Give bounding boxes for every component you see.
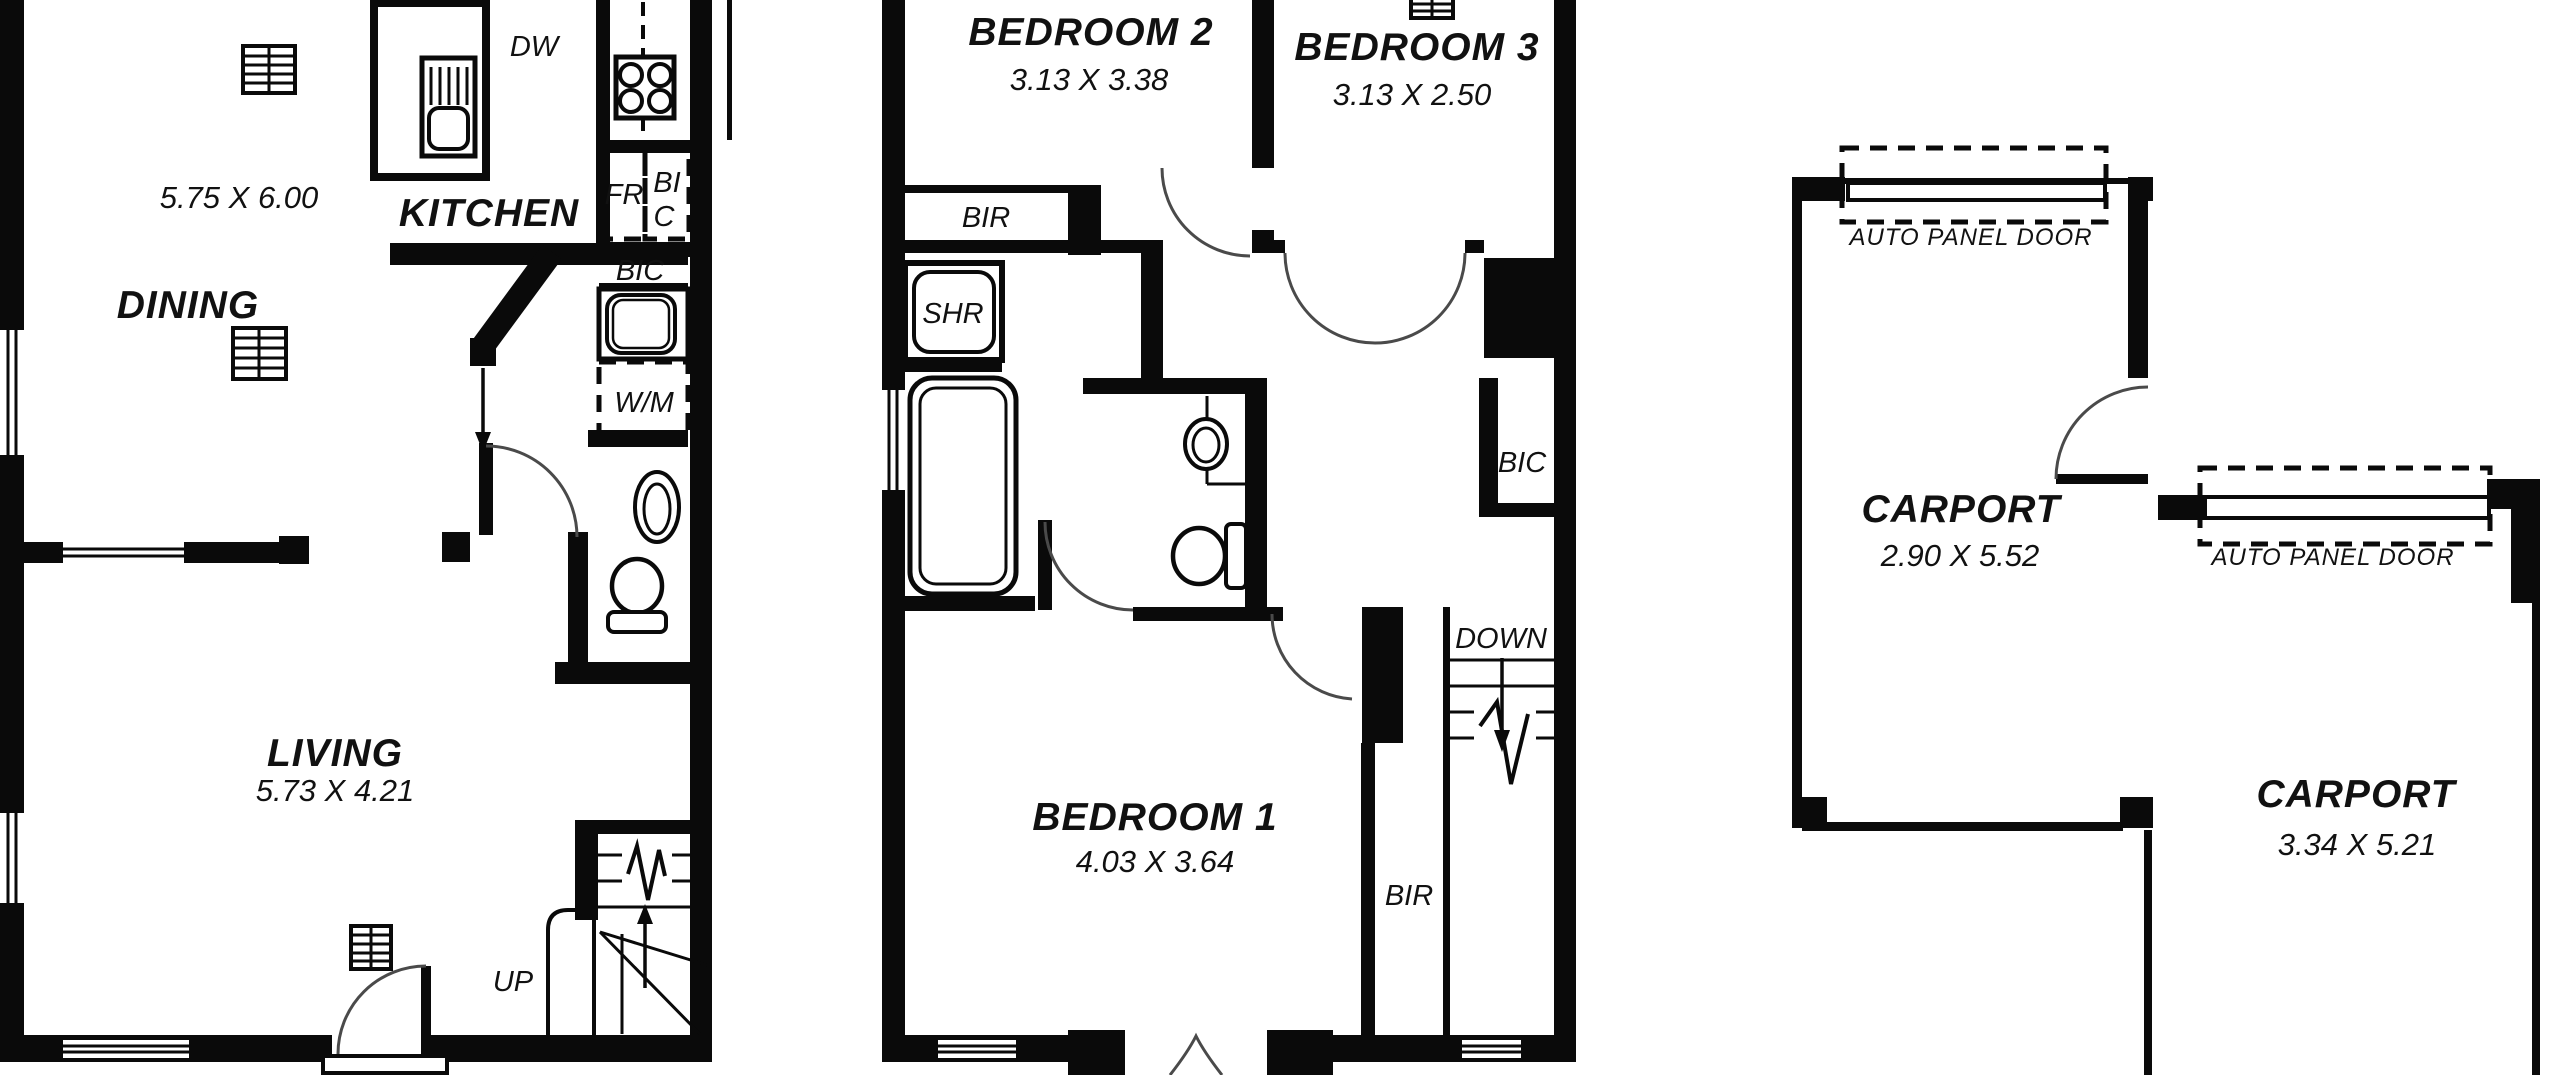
living-dims: 5.73 X 4.21	[256, 773, 415, 808]
carport1-label: CARPORT	[1861, 488, 2062, 531]
front-door	[323, 966, 447, 1073]
powder-basin-icon	[635, 472, 679, 542]
ground-floor-plan: 5.75 X 6.00 KITCHEN DINING LIVING 5.73 X…	[0, 0, 732, 1073]
robe1-label: BIR	[1385, 880, 1433, 912]
vent-icon	[233, 328, 286, 379]
stairs-down	[1450, 658, 1554, 790]
ground-floor-windows	[0, 330, 189, 1058]
bedroom1-label: BEDROOM 1	[1032, 796, 1277, 839]
carport-access-door	[2056, 387, 2148, 484]
cupboard-stack-line1: BI	[653, 167, 680, 199]
laundry-sink-icon	[599, 289, 688, 359]
window-bottom-living	[63, 1040, 189, 1058]
carport-walls	[1792, 177, 2540, 1075]
auto-panel-door-2	[2200, 468, 2490, 544]
bedroom3-dims: 3.13 X 2.50	[1333, 77, 1492, 112]
dishwasher-label: DW	[510, 31, 561, 63]
bathroom-toilet-icon	[1173, 524, 1246, 588]
fridge-label: FR	[605, 179, 644, 211]
window-bedroom1	[938, 1040, 1016, 1058]
bedroom1-door	[1272, 614, 1352, 699]
cupboard-label: BIC	[616, 255, 665, 287]
kitchen-bench	[374, 3, 486, 177]
robe2-label: BIR	[962, 202, 1010, 234]
bedroom2-dims: 3.13 X 3.38	[1010, 62, 1169, 97]
dining-label: DINING	[117, 284, 260, 327]
bedroom3-door	[1285, 253, 1465, 343]
bedroom2-door	[1162, 168, 1250, 256]
bedroom1-dims: 4.03 X 3.64	[1076, 844, 1235, 879]
bathtub-icon	[910, 378, 1016, 594]
washing-machine-label: W/M	[614, 387, 674, 419]
floor-plan-page: 5.75 X 6.00 KITCHEN DINING LIVING 5.73 X…	[0, 0, 2560, 1075]
auto-panel-door-1	[1842, 148, 2106, 222]
powder-toilet-icon	[608, 559, 666, 632]
cupboard-label: BIC	[1498, 447, 1547, 479]
carport-plan: AUTO PANEL DOOR CARPORT 2.90 X 5.52 AUTO…	[1792, 148, 2540, 1075]
window-left-living	[0, 813, 24, 903]
carport2-label: CARPORT	[2256, 773, 2457, 816]
carport1-dims: 2.90 X 5.52	[1880, 538, 2040, 573]
bedroom2-label: BEDROOM 2	[968, 11, 1213, 54]
floor-plan-svg: 5.75 X 6.00 KITCHEN DINING LIVING 5.73 X…	[0, 0, 2560, 1075]
kitchen-sink-icon	[422, 58, 475, 156]
vent-icon	[1411, 0, 1453, 18]
bathroom-door	[1038, 520, 1133, 610]
window-left-top	[0, 330, 24, 455]
carport2-dims: 3.34 X 5.21	[2278, 827, 2437, 862]
hall-door	[479, 443, 577, 537]
stove-icon	[616, 2, 674, 140]
bathroom-basin-icon	[1185, 396, 1245, 484]
dining-kitchen-dims: 5.75 X 6.00	[160, 180, 319, 215]
window-bathroom-left	[882, 390, 905, 490]
entry-path-arrow	[475, 368, 491, 452]
stairs-up-label: UP	[493, 966, 534, 998]
stairs-down-label: DOWN	[1455, 623, 1547, 655]
kitchen-label: KITCHEN	[399, 192, 579, 235]
bedroom3-label: BEDROOM 3	[1294, 26, 1539, 69]
window-interior-wall	[63, 544, 184, 561]
vent-icon	[351, 926, 391, 969]
window-stairwell	[1462, 1040, 1521, 1058]
auto-panel-door-2-label: AUTO PANEL DOOR	[2209, 544, 2454, 571]
auto-panel-door-1-label: AUTO PANEL DOOR	[1847, 224, 2092, 251]
living-label: LIVING	[267, 732, 403, 775]
shower-label: SHR	[922, 298, 983, 330]
lower-entry-door	[1170, 1036, 1222, 1075]
vent-icon	[243, 46, 295, 93]
first-floor-plan: BEDROOM 2 3.13 X 3.38 BEDROOM 3 3.13 X 2…	[882, 0, 1576, 1075]
stairs-up	[548, 838, 710, 1036]
cupboard-stack-line2: C	[654, 201, 676, 233]
